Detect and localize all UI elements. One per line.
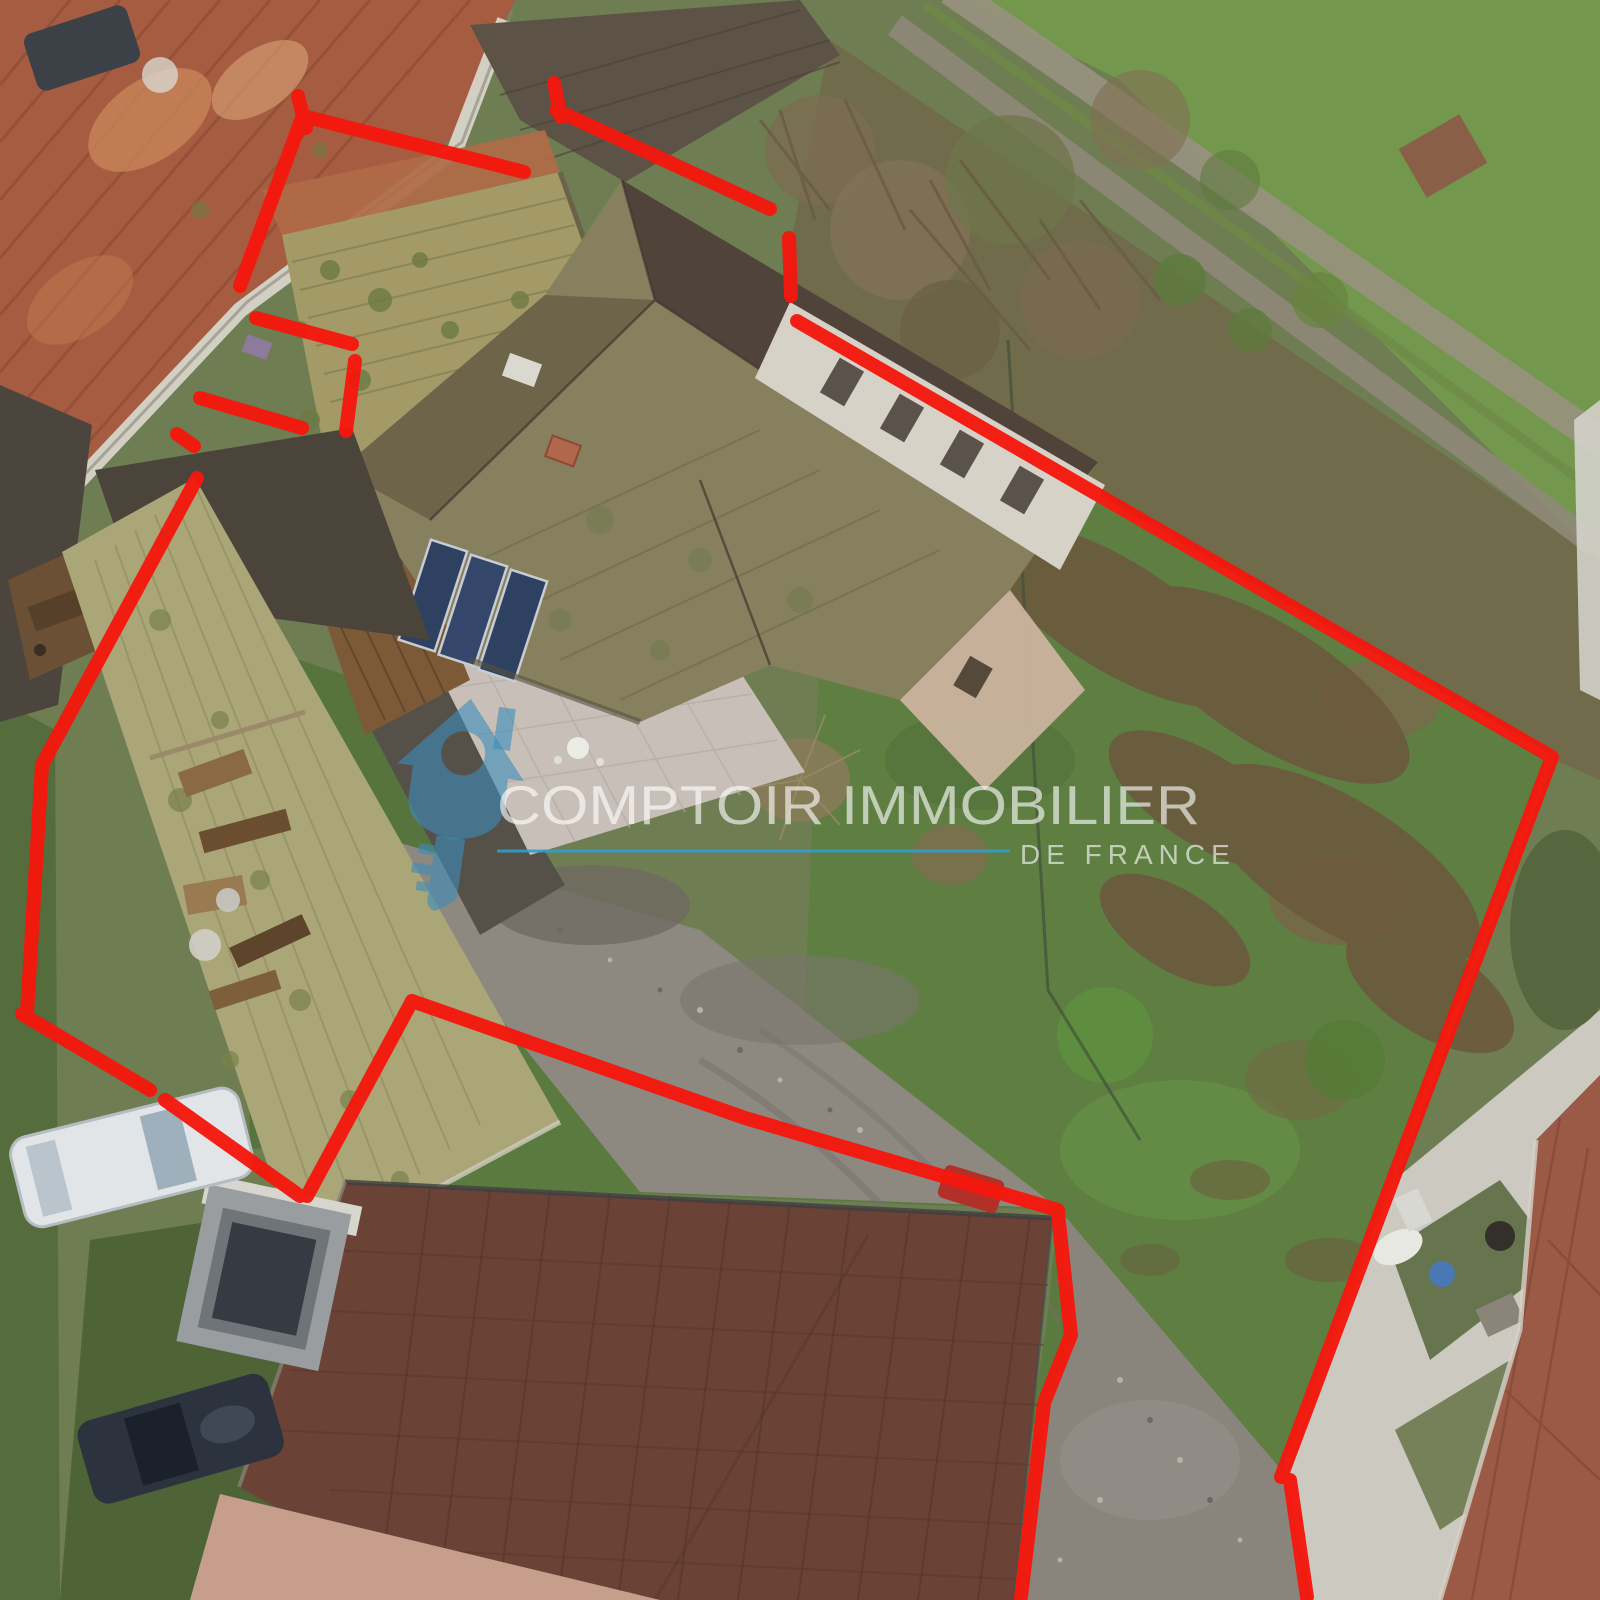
aerial-property-photo: COMPTOIR IMMOBILIER DE FRANCE — [0, 0, 1600, 1600]
garden-table — [567, 737, 589, 759]
boundary-tick — [177, 434, 194, 446]
boundary-dash — [789, 238, 791, 296]
drone-photo-canvas: COMPTOIR IMMOBILIER DE FRANCE — [0, 0, 1600, 1600]
boundary-dash — [346, 361, 355, 431]
blue-barrel — [1429, 1261, 1455, 1287]
watermark-region-text: DE FRANCE — [1020, 839, 1236, 870]
watermark-brand-text: COMPTOIR IMMOBILIER — [497, 774, 1200, 836]
